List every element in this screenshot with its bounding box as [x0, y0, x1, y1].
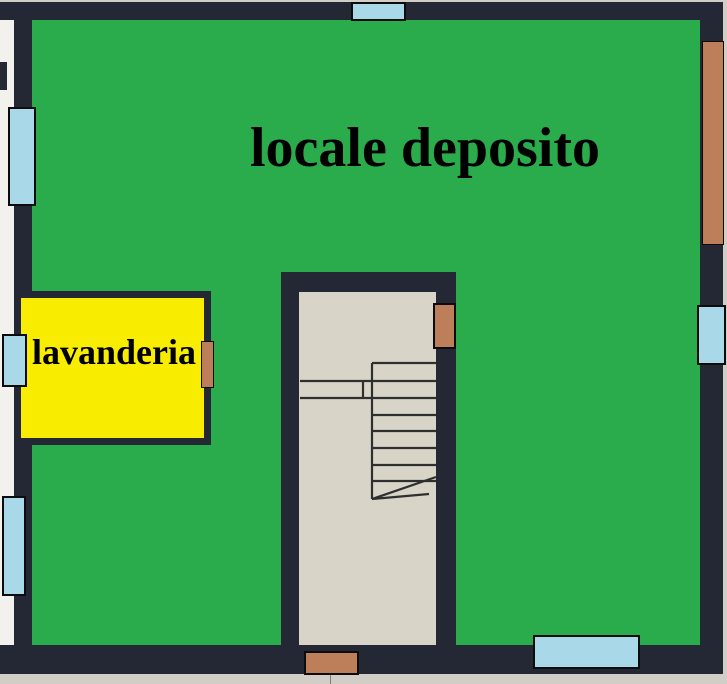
staircase: [299, 292, 436, 650]
window-right: [697, 305, 726, 365]
door-stairwell-bottom: [304, 651, 359, 675]
window-top: [351, 2, 406, 21]
wall-fragment: [0, 62, 7, 90]
door-stairwell-upper: [433, 303, 456, 349]
window-bottom: [533, 635, 640, 669]
door-swing-line: [330, 675, 331, 684]
door-right-tall: [702, 41, 724, 245]
stairs-drawing: [299, 292, 436, 650]
floor-plan: locale deposito lavanderia: [0, 0, 727, 684]
window-left-lower: [2, 496, 26, 596]
room-label-deposito: locale deposito: [210, 112, 640, 184]
room-label-lavanderia: lavanderia: [24, 330, 204, 374]
window-left-upper: [8, 107, 36, 206]
